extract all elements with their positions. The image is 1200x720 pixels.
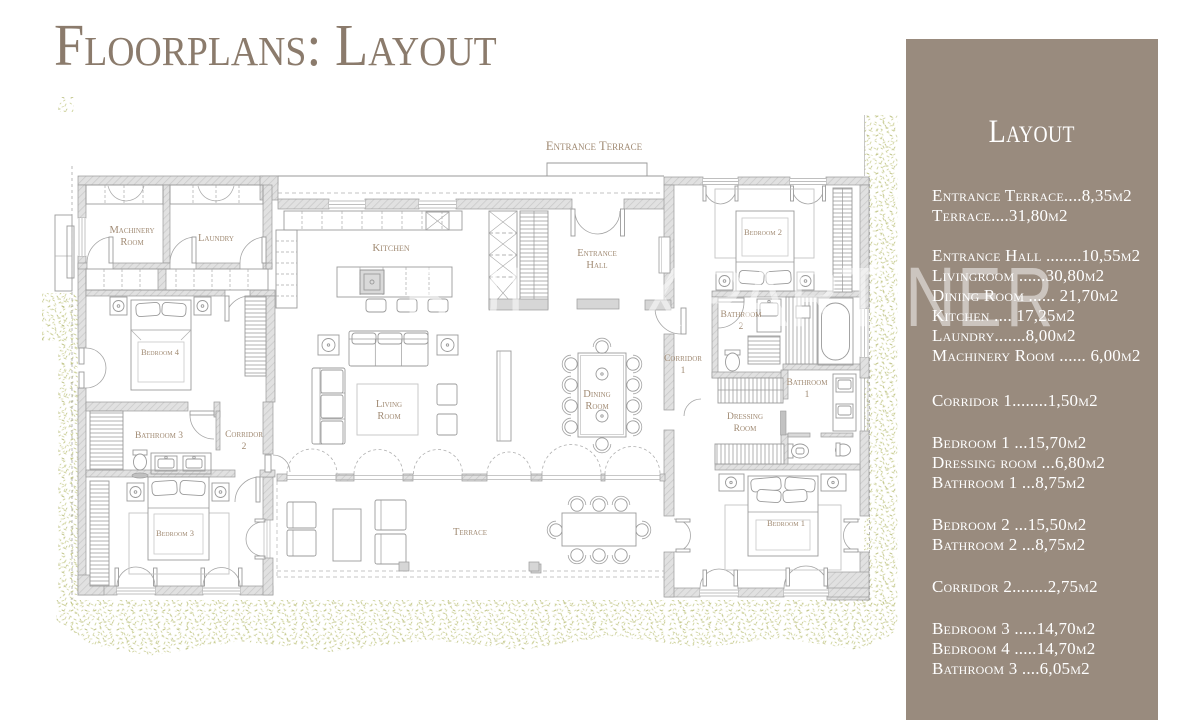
svg-text:Machinery: Machinery — [109, 225, 154, 236]
svg-text:Room: Room — [585, 401, 609, 412]
svg-text:Laundry: Laundry — [198, 233, 234, 244]
svg-text:2: 2 — [242, 442, 247, 452]
svg-text:Bathroom: Bathroom — [787, 378, 829, 388]
svg-text:Bathroom 3: Bathroom 3 — [135, 431, 183, 441]
svg-text:Living: Living — [376, 399, 402, 410]
svg-text:Terrace: Terrace — [453, 527, 487, 538]
svg-text:1: 1 — [805, 390, 810, 400]
svg-text:Entrance Terrace: Entrance Terrace — [546, 139, 643, 153]
svg-text:Dressing: Dressing — [727, 412, 763, 422]
svg-text:Dining: Dining — [583, 389, 610, 400]
svg-text:Room: Room — [120, 237, 144, 248]
svg-text:Room: Room — [377, 411, 401, 422]
svg-text:Corridor: Corridor — [664, 354, 702, 364]
svg-text:Bedroom 1: Bedroom 1 — [767, 518, 805, 528]
svg-text:Bedroom 3: Bedroom 3 — [156, 528, 194, 538]
svg-text:1: 1 — [681, 366, 686, 376]
svg-text:Corridor: Corridor — [225, 430, 263, 440]
svg-text:Bedroom 2: Bedroom 2 — [744, 227, 782, 237]
svg-text:Bedroom 4: Bedroom 4 — [141, 347, 180, 357]
svg-text:Room: Room — [734, 424, 757, 434]
